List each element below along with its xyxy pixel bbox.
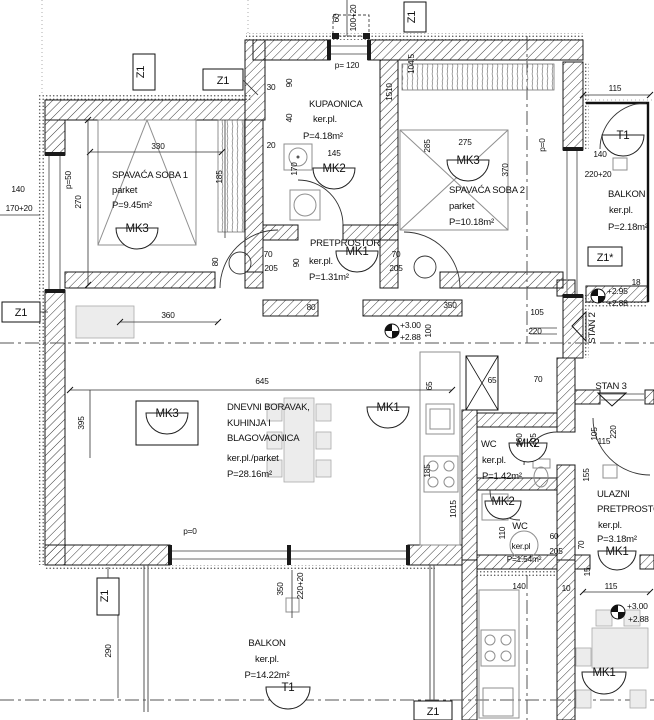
mk1-ulazni-label: MK1 — [605, 546, 628, 558]
dim-220-ulazni: 220 — [608, 425, 618, 439]
z1-star-marker: Z1* — [597, 252, 614, 264]
dim-100-center: 100 — [423, 324, 433, 338]
z1-marker-a: Z1 — [135, 66, 147, 79]
mk1-dnevni-label: MK1 — [376, 402, 399, 414]
stove-2 — [481, 630, 515, 666]
balkon1-area: P=2.18m² — [608, 222, 648, 233]
wc1-area: P=1.42m² — [482, 471, 522, 482]
dnevni-name-2: KUHINJA I — [227, 418, 271, 429]
dim-80-v: 80 — [210, 257, 220, 266]
wc2-name: WC — [512, 521, 528, 532]
sink-2 — [483, 688, 513, 716]
t1-balkon1-label: T1 — [616, 130, 629, 142]
dim-115-topright: 115 — [609, 83, 622, 93]
soba1-area: P=9.45m² — [112, 200, 152, 211]
dim-205-wc2: 205 — [549, 546, 563, 556]
dim-1015: 1015 — [448, 500, 458, 518]
dim-100-20-top: 100+20 — [348, 4, 358, 31]
floor-plan-drawing: MK3 MK2 MK3 MK1 MK3 MK1 MK2 MK2 MK1 MK1 … — [0, 0, 654, 720]
level-300-bottomright: +3.00 — [627, 601, 648, 611]
dim-140-left: 140 — [11, 184, 25, 194]
dim-p0-south: p=0 — [183, 526, 197, 536]
dim-65-h: 65 — [488, 375, 497, 385]
stan3-label: STAN 3 — [595, 381, 626, 392]
wc2-floor: ker.pl — [512, 541, 531, 551]
dim-185-kitchen: 185 — [422, 464, 432, 478]
wardrobe-2 — [402, 64, 554, 90]
dim-30: 30 — [267, 82, 276, 92]
stan2-label: STAN 2 — [587, 312, 598, 343]
balkon2-name: BALKON — [248, 638, 286, 649]
dim-40-kup: 40 — [284, 113, 294, 122]
dim-145: 145 — [327, 148, 341, 158]
entry-cabinet — [603, 465, 617, 478]
dim-70-ulazni: 70 — [576, 540, 586, 549]
mk1-unit2-label: MK1 — [592, 667, 615, 679]
dim-70-stan2: 70 — [534, 374, 543, 384]
soba2-floor: parket — [449, 201, 475, 212]
dim-20: 20 — [267, 140, 276, 150]
dim-395: 395 — [76, 416, 86, 430]
dim-140-kitchen2: 140 — [512, 581, 526, 591]
kupaonica-area: P=4.18m² — [303, 131, 343, 142]
dim-18: 18 — [632, 277, 641, 287]
dim-220-20-balkon: 220+20 — [585, 169, 612, 179]
dim-350-south: 350 — [275, 582, 285, 596]
dim-p0-soba2: p=0 — [537, 138, 547, 152]
dim-15: 15 — [582, 567, 592, 576]
dim-330: 330 — [151, 141, 165, 151]
dim-160-wc1: 160 — [514, 433, 524, 447]
level-marker-center — [385, 324, 399, 338]
ulazni-name-1: ULAZNI — [597, 489, 630, 500]
dnevni-floor: ker.pl./parket — [227, 453, 279, 464]
dim-290: 290 — [103, 644, 113, 658]
level-288-center: +2.88 — [400, 332, 421, 342]
level-288-topright: +2.88 — [607, 298, 628, 308]
soba2-name: SPAVAĆA SOBA 2 — [449, 185, 525, 196]
mk2-kupaonica-label: MK2 — [322, 163, 345, 175]
dim-60-wc2: 60 — [550, 531, 559, 541]
pretprostor-floor: ker.pl. — [309, 256, 333, 267]
soba2-area: P=10.18m² — [449, 217, 494, 228]
level-288-bottomright: +2.88 — [628, 614, 649, 624]
dim-205-door2: 205 — [389, 263, 403, 273]
dim-70-door2: 70 — [392, 249, 401, 259]
soba1-floor: parket — [112, 185, 138, 196]
wc1-floor: ker.pl. — [482, 455, 506, 466]
dnevni-name-3: BLAGOVAONICA — [227, 433, 300, 444]
balkon2-floor: ker.pl. — [255, 654, 279, 665]
dim-360: 360 — [161, 310, 175, 320]
z1-marker-c: Z1 — [406, 11, 418, 24]
dim-65-v: 65 — [424, 381, 434, 390]
dim-105-stan2: 105 — [530, 307, 544, 317]
level-marker-bottomright — [611, 605, 625, 619]
pretprostor-name: PRETPROSTOR — [310, 238, 380, 249]
table-2 — [592, 628, 648, 668]
ulazni-floor: ker.pl. — [598, 520, 622, 531]
balkon1-floor: ker.pl. — [609, 205, 633, 216]
dim-220-stan2: 220 — [528, 326, 542, 336]
floor-plan: MK3 MK2 MK3 MK1 MK3 MK1 MK2 MK2 MK1 MK1 … — [0, 0, 654, 720]
dim-90-pret: 90 — [291, 258, 301, 267]
mk2-wc2-label: MK2 — [491, 496, 514, 508]
dim-140-balkon: 140 — [593, 149, 607, 159]
dim-90-kup: 90 — [284, 78, 294, 87]
level-300-center: +3.00 — [400, 320, 421, 330]
mk3-dnevni-label: MK3 — [155, 408, 178, 420]
balkon1-name: BALKON — [608, 189, 646, 200]
mk3-soba2-label: MK3 — [456, 155, 479, 167]
dim-370: 370 — [500, 163, 510, 177]
wc1-name: WC — [481, 439, 497, 450]
z1-marker-f: Z1 — [427, 706, 440, 718]
dim-60-top: 60 — [331, 13, 341, 22]
balkon2-area: P=14.22m² — [245, 670, 290, 681]
dim-1510: 1510 — [384, 83, 394, 101]
wc2-area: P=1.54m² — [507, 554, 542, 564]
mk3-soba1-label: MK3 — [125, 223, 148, 235]
dnevni-area: P=28.16m² — [227, 469, 272, 480]
ulazni-area: P=3.18m² — [597, 534, 637, 545]
dim-105-ulazni: 105 — [589, 427, 599, 441]
level-295-topright: +2.95 — [607, 286, 628, 296]
dim-275: 275 — [458, 137, 472, 147]
t1-balkon2-label: T1 — [281, 682, 294, 694]
dim-185-soba1: 185 — [214, 170, 224, 184]
soba1-name: SPAVAĆA SOBA 1 — [112, 170, 188, 181]
kupaonica-name: KUPAONICA — [309, 99, 363, 110]
dim-645: 645 — [255, 376, 269, 386]
level-marker-topright — [591, 289, 605, 303]
dim-p120: p= 120 — [335, 60, 360, 70]
z1-marker-d: Z1 — [15, 307, 28, 319]
z1-marker-e: Z1 — [99, 590, 111, 603]
dim-205-wc1: 205 — [528, 433, 538, 447]
dim-285: 285 — [422, 139, 432, 153]
z1-marker-b: Z1 — [217, 75, 230, 87]
dim-205-door1: 205 — [264, 263, 278, 273]
dim-10: 10 — [562, 583, 571, 593]
dim-350-center: 350 — [443, 300, 457, 310]
dim-170-20-left: 170+20 — [6, 203, 33, 213]
dim-110: 110 — [497, 526, 507, 539]
dnevni-name-1: DNEVNI BORAVAK, — [227, 402, 310, 413]
dim-115-bottomright: 115 — [605, 581, 618, 591]
dim-80-h: 80 — [307, 302, 316, 312]
kupaonica-floor: ker.pl. — [313, 114, 337, 125]
ulazni-name-2: PRETPROSTOR — [597, 504, 654, 515]
dim-270: 270 — [73, 195, 83, 209]
dim-104-5: 104.5 — [406, 54, 416, 74]
dim-155: 155 — [581, 468, 591, 482]
dim-220-20-south: 220+20 — [295, 572, 305, 599]
dim-p50: p=50 — [63, 170, 73, 188]
pretprostor-area: P=1.31m² — [309, 272, 349, 283]
dim-170-kup: 170 — [289, 162, 299, 176]
dim-70-door1: 70 — [264, 249, 273, 259]
